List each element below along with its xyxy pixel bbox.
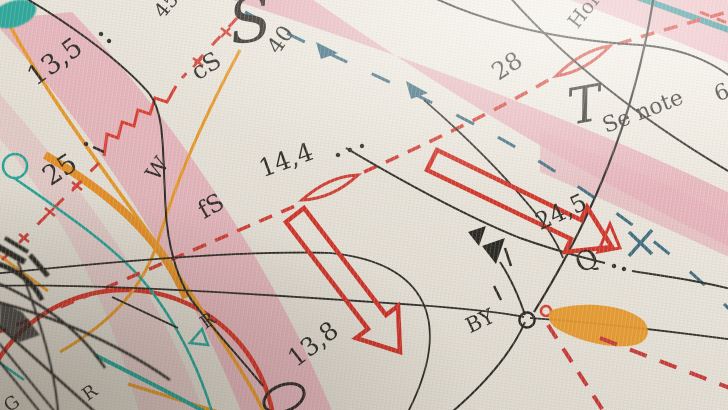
letter-g: G — [0, 391, 24, 410]
beacon-tail — [500, 262, 525, 315]
abbrev-hor: Hor — [563, 0, 606, 33]
beacon-arrowhead-small — [468, 226, 486, 246]
teal-cross-mark — [629, 230, 652, 256]
sounding-24-5: 24,5 — [531, 188, 591, 236]
line-bottom-curve — [452, 322, 525, 410]
teal-triangle-symbol — [190, 329, 208, 345]
light-position-circle — [520, 313, 535, 328]
seabed-letter-s: S — [224, 0, 276, 59]
light-sector-flare — [549, 305, 648, 347]
sounding-45: 45 — [149, 0, 184, 22]
sounding-14-4: 14,4 — [255, 137, 317, 183]
red-lens-symbol-1 — [302, 175, 358, 200]
red-note-number: 6 — [711, 79, 728, 107]
teal-arrowhead-2 — [406, 81, 428, 99]
red-lens-symbol-2 — [556, 46, 610, 76]
chart-artwork: 13,5 45 S 40 cS Hor 28 Se note 6 25 W fS… — [0, 0, 728, 410]
seabed-cs: cS — [186, 46, 226, 86]
line-dashdot-continue — [632, 271, 728, 290]
current-arrow-down — [286, 208, 400, 352]
sounding-28: 28 — [487, 46, 528, 86]
chart-photo: 13,5 45 S 40 cS Hor 28 Se note 6 25 W fS… — [0, 0, 728, 410]
beacon-arrowhead-large — [482, 238, 505, 264]
